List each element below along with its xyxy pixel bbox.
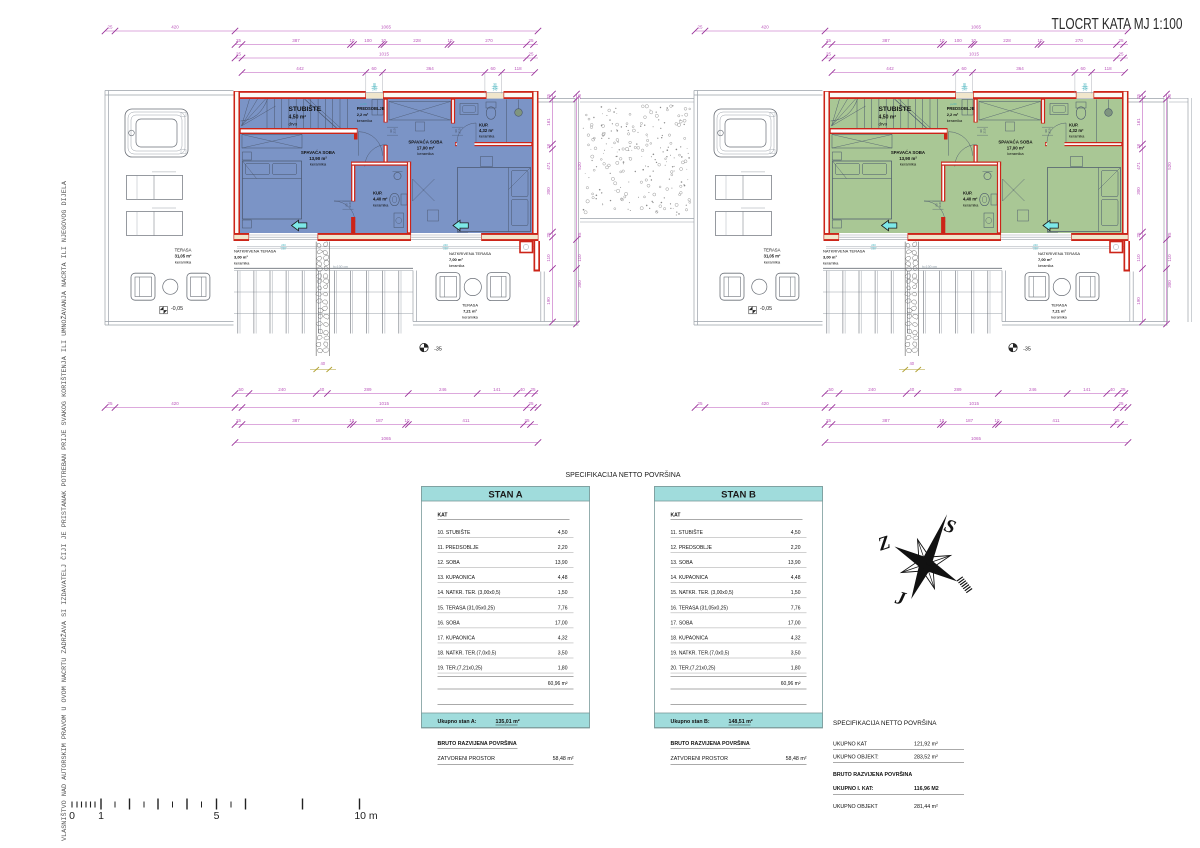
svg-text:4,40 m²: 4,40 m²: [373, 197, 388, 202]
svg-text:UKUPNO OBJEKT: UKUPNO OBJEKT: [833, 804, 879, 810]
svg-text:90: 90: [373, 82, 376, 86]
svg-text:60: 60: [371, 66, 377, 71]
svg-text:drvo: drvo: [289, 121, 298, 126]
svg-text:16. SOBA: 16. SOBA: [438, 620, 461, 626]
svg-text:TLOCRT KATA MJ 1:100: TLOCRT KATA MJ 1:100: [1052, 16, 1183, 33]
svg-text:25: 25: [107, 401, 113, 406]
svg-text:190: 190: [546, 297, 551, 305]
svg-text:STAN B: STAN B: [721, 490, 756, 501]
svg-text:BRUTO RAZVIJENA POVRŠINA: BRUTO RAZVIJENA POVRŠINA: [671, 739, 750, 747]
svg-text:300: 300: [546, 187, 551, 195]
svg-text:25: 25: [1118, 401, 1124, 406]
svg-text:25: 25: [528, 52, 534, 57]
svg-text:ZATVORENI PROSTOR: ZATVORENI PROSTOR: [438, 756, 496, 762]
svg-text:60: 60: [1080, 66, 1086, 71]
svg-text:230: 230: [443, 246, 448, 250]
svg-text:KUP.: KUP.: [963, 191, 972, 196]
svg-text:442: 442: [296, 66, 304, 71]
svg-text:BRUTO RAZVIJENA POVRŠINA: BRUTO RAZVIJENA POVRŠINA: [438, 739, 517, 747]
svg-text:50: 50: [828, 387, 834, 392]
svg-text:STUBIŠTE: STUBIŠTE: [879, 104, 912, 113]
svg-text:3,50: 3,50: [558, 650, 568, 656]
svg-text:17. KUPAONICA: 17. KUPAONICA: [438, 635, 476, 641]
svg-text:60,96 m²: 60,96 m²: [781, 681, 801, 687]
svg-text:h=100 cm: h=100 cm: [333, 265, 348, 269]
svg-text:110: 110: [1167, 254, 1172, 262]
svg-text:50: 50: [238, 387, 244, 392]
svg-text:116,96 M2: 116,96 M2: [914, 786, 939, 792]
svg-text:14. NATKR. TER. (3,00x0,5): 14. NATKR. TER. (3,00x0,5): [438, 590, 501, 596]
svg-text:210: 210: [348, 202, 352, 207]
svg-text:25: 25: [1167, 232, 1172, 238]
svg-text:keramika: keramika: [234, 262, 250, 266]
svg-text:Ukupno stan B:: Ukupno stan B:: [671, 719, 710, 725]
svg-text:5: 5: [214, 810, 220, 822]
svg-text:keramika: keramika: [310, 162, 327, 167]
svg-text:4,50 m²: 4,50 m²: [879, 115, 897, 121]
svg-text:20. TER.(7,21x0,25): 20. TER.(7,21x0,25): [671, 665, 716, 671]
svg-text:keramika: keramika: [479, 135, 495, 139]
svg-text:25: 25: [528, 38, 534, 43]
svg-text:161: 161: [1136, 118, 1141, 126]
svg-text:KAT: KAT: [671, 513, 681, 519]
svg-text:2,20: 2,20: [791, 545, 801, 551]
svg-text:246: 246: [1029, 387, 1037, 392]
svg-text:31,05 m²: 31,05 m²: [764, 254, 781, 259]
svg-text:keramika: keramika: [417, 151, 434, 156]
svg-text:14. KUPAONICA: 14. KUPAONICA: [671, 575, 709, 581]
svg-text:1015: 1015: [379, 401, 390, 406]
svg-text:187: 187: [376, 418, 384, 423]
svg-text:411: 411: [462, 418, 470, 423]
svg-text:228: 228: [413, 38, 421, 43]
svg-text:25: 25: [546, 94, 551, 100]
svg-text:25: 25: [1136, 232, 1141, 238]
svg-text:25: 25: [107, 25, 113, 30]
svg-text:60,96 m²: 60,96 m²: [548, 681, 568, 687]
svg-text:90: 90: [963, 82, 966, 86]
svg-text:210: 210: [982, 128, 986, 133]
svg-text:230: 230: [1033, 246, 1038, 250]
svg-text:3,00 m²: 3,00 m²: [823, 255, 837, 260]
svg-text:UKUPNO OBJEKT:: UKUPNO OBJEKT:: [833, 755, 879, 761]
svg-text:1,80: 1,80: [558, 665, 568, 671]
svg-text:-35: -35: [434, 347, 442, 353]
svg-text:420: 420: [761, 401, 769, 406]
svg-text:drvo: drvo: [879, 121, 888, 126]
svg-text:110: 110: [546, 254, 551, 262]
svg-text:25: 25: [528, 401, 534, 406]
svg-text:10: 10: [971, 38, 977, 43]
svg-text:KUP.: KUP.: [479, 123, 488, 128]
svg-text:18. KUPAONICA: 18. KUPAONICA: [671, 635, 709, 641]
svg-text:210: 210: [1047, 128, 1051, 133]
svg-text:STAN A: STAN A: [488, 490, 522, 501]
svg-text:7,76: 7,76: [558, 605, 568, 611]
svg-text:230: 230: [281, 246, 286, 250]
svg-text:keramika: keramika: [449, 264, 465, 268]
svg-text:281,44 m²: 281,44 m²: [914, 804, 938, 810]
svg-text:19. NATKR. TER.(7,0x0,5): 19. NATKR. TER.(7,0x0,5): [671, 650, 730, 656]
svg-text:NATKRIVENA TERASA: NATKRIVENA TERASA: [1038, 251, 1080, 256]
svg-text:15. TERASA (31,05x0,25): 15. TERASA (31,05x0,25): [438, 605, 496, 611]
svg-text:10: 10: [381, 38, 387, 43]
svg-text:PREDSOBLJE: PREDSOBLJE: [947, 106, 975, 111]
svg-text:0: 0: [69, 810, 75, 822]
svg-text:17,00: 17,00: [788, 620, 801, 626]
svg-text:17,00: 17,00: [555, 620, 568, 626]
svg-text:NATKRIVENA TERASA: NATKRIVENA TERASA: [823, 249, 865, 254]
svg-text:1065: 1065: [971, 436, 982, 441]
svg-text:-0,05: -0,05: [760, 306, 772, 312]
svg-text:17,00 m²: 17,00 m²: [1007, 146, 1025, 151]
svg-text:2,2 m²: 2,2 m²: [947, 112, 959, 117]
svg-text:25: 25: [524, 418, 530, 423]
svg-text:10 m: 10 m: [354, 810, 378, 822]
svg-text:16. TERASA (31,05x0,25): 16. TERASA (31,05x0,25): [671, 605, 729, 611]
svg-text:1,50: 1,50: [558, 590, 568, 596]
svg-text:25: 25: [577, 94, 582, 100]
svg-text:keramika: keramika: [373, 204, 389, 208]
svg-text:210: 210: [938, 202, 942, 207]
svg-text:4,32: 4,32: [791, 635, 801, 641]
svg-text:118: 118: [1104, 66, 1112, 71]
svg-text:UKUPNO I. KAT:: UKUPNO I. KAT:: [833, 786, 874, 792]
svg-text:300: 300: [1136, 187, 1141, 195]
svg-text:18: 18: [1136, 144, 1141, 150]
svg-text:240: 240: [278, 387, 286, 392]
svg-text:10: 10: [939, 38, 945, 43]
svg-text:289: 289: [364, 387, 372, 392]
svg-text:1065: 1065: [381, 436, 392, 441]
svg-text:25: 25: [236, 418, 242, 423]
svg-text:keramika: keramika: [357, 119, 373, 123]
svg-text:VLASNIŠTVO NAD AUTORSKIM PRAVO: VLASNIŠTVO NAD AUTORSKIM PRAVOM U OVOM N…: [61, 181, 68, 841]
svg-text:420: 420: [171, 25, 179, 30]
svg-text:4,48: 4,48: [558, 575, 568, 581]
svg-text:240: 240: [962, 86, 967, 90]
svg-text:364: 364: [1016, 66, 1024, 71]
svg-text:7,00 m²: 7,00 m²: [449, 257, 463, 262]
svg-text:118: 118: [514, 66, 522, 71]
svg-text:2,2 m²: 2,2 m²: [357, 112, 369, 117]
svg-text:520: 520: [577, 162, 582, 170]
svg-text:1015: 1015: [969, 401, 980, 406]
svg-text:135,01 m²: 135,01 m²: [496, 719, 520, 725]
svg-text:p+50: p+50: [360, 102, 367, 106]
svg-text:240: 240: [372, 86, 377, 90]
svg-text:10: 10: [447, 38, 453, 43]
svg-text:keramika: keramika: [1051, 316, 1067, 320]
svg-text:19. TER.(7,21x0,25): 19. TER.(7,21x0,25): [438, 665, 483, 671]
svg-text:25: 25: [236, 38, 242, 43]
svg-text:25: 25: [1136, 94, 1141, 100]
svg-text:25: 25: [826, 418, 832, 423]
svg-text:1015: 1015: [969, 52, 980, 57]
svg-text:40: 40: [520, 387, 526, 392]
svg-text:25: 25: [577, 232, 582, 238]
svg-text:SPAVAĆA SOBA: SPAVAĆA SOBA: [408, 140, 443, 145]
svg-text:210: 210: [457, 128, 461, 133]
svg-text:25: 25: [1118, 38, 1124, 43]
svg-text:11. STUBIŠTE: 11. STUBIŠTE: [671, 529, 704, 536]
svg-text:1065: 1065: [971, 25, 982, 30]
svg-text:13. SOBA: 13. SOBA: [671, 560, 694, 566]
svg-text:keramika: keramika: [823, 262, 839, 266]
svg-text:90: 90: [494, 82, 497, 86]
svg-text:25: 25: [697, 25, 703, 30]
svg-text:NATKRIVENA TERASA: NATKRIVENA TERASA: [234, 249, 276, 254]
svg-text:1: 1: [98, 810, 104, 822]
svg-text:387: 387: [882, 38, 890, 43]
svg-text:110: 110: [1136, 254, 1141, 262]
svg-text:KUP.: KUP.: [1069, 123, 1078, 128]
svg-text:4,48: 4,48: [791, 575, 801, 581]
svg-text:7,21 m²: 7,21 m²: [1052, 309, 1066, 314]
svg-text:60: 60: [961, 66, 967, 71]
svg-text:SPECIFIKACIJA NETTO POVRŠINA: SPECIFIKACIJA NETTO POVRŠINA: [565, 470, 680, 479]
svg-text:7,00 m²: 7,00 m²: [1038, 257, 1052, 262]
svg-text:keramika: keramika: [175, 260, 192, 265]
svg-text:TERASA: TERASA: [175, 248, 192, 253]
svg-text:TERASA: TERASA: [764, 248, 781, 253]
svg-text:471: 471: [546, 162, 551, 170]
svg-text:40: 40: [1110, 387, 1116, 392]
svg-text:4,32 m²: 4,32 m²: [1069, 128, 1084, 133]
svg-text:18. NATKR. TER.(7,0x0,5): 18. NATKR. TER.(7,0x0,5): [438, 650, 497, 656]
svg-text:25: 25: [1118, 52, 1124, 57]
svg-text:25: 25: [236, 52, 242, 57]
svg-text:12. PREDSOBLJE: 12. PREDSOBLJE: [671, 545, 713, 551]
svg-text:58,48 m²: 58,48 m²: [553, 756, 574, 762]
svg-text:228: 228: [1003, 38, 1011, 43]
svg-text:7,76: 7,76: [791, 605, 801, 611]
svg-text:420: 420: [171, 401, 179, 406]
svg-text:10: 10: [939, 418, 945, 423]
svg-text:13,90: 13,90: [555, 560, 568, 566]
svg-text:keramika: keramika: [900, 162, 917, 167]
svg-text:4,32 m²: 4,32 m²: [479, 128, 494, 133]
svg-text:13,90 m²: 13,90 m²: [309, 156, 327, 161]
svg-text:190: 190: [1136, 297, 1141, 305]
svg-text:210: 210: [392, 128, 396, 133]
svg-text:25: 25: [1114, 418, 1120, 423]
svg-text:187: 187: [966, 418, 974, 423]
svg-text:SPAVAĆA SOBA: SPAVAĆA SOBA: [301, 150, 336, 155]
svg-text:1,80: 1,80: [791, 665, 801, 671]
svg-text:1065: 1065: [381, 25, 392, 30]
svg-text:520: 520: [1167, 162, 1172, 170]
svg-text:keramika: keramika: [462, 316, 478, 320]
svg-text:1015: 1015: [379, 52, 390, 57]
svg-text:11. PREDSOBLJE: 11. PREDSOBLJE: [438, 545, 480, 551]
svg-text:keramika: keramika: [1007, 151, 1024, 156]
svg-text:4,50 m²: 4,50 m²: [289, 115, 307, 121]
svg-text:387: 387: [292, 38, 300, 43]
svg-text:4,32: 4,32: [558, 635, 568, 641]
svg-text:BRUTO RAZVIJENA POVRŠINA: BRUTO RAZVIJENA POVRŠINA: [833, 770, 912, 778]
svg-text:300: 300: [577, 280, 582, 288]
svg-text:270: 270: [1075, 38, 1083, 43]
svg-text:10: 10: [1037, 38, 1043, 43]
svg-text:SPECIFIKACIJA NETTO POVRŠINA: SPECIFIKACIJA NETTO POVRŠINA: [833, 718, 937, 727]
svg-text:KUP.: KUP.: [373, 191, 382, 196]
svg-text:411: 411: [1052, 418, 1060, 423]
svg-text:1,50: 1,50: [791, 590, 801, 596]
svg-text:25: 25: [530, 387, 536, 392]
svg-text:387: 387: [882, 418, 890, 423]
svg-text:2,20: 2,20: [558, 545, 568, 551]
svg-text:31,05 m²: 31,05 m²: [175, 254, 192, 259]
svg-text:10: 10: [349, 38, 355, 43]
svg-text:141: 141: [1083, 387, 1091, 392]
svg-text:300: 300: [1167, 280, 1172, 288]
svg-text:17. SOBA: 17. SOBA: [671, 620, 694, 626]
svg-text:110: 110: [577, 254, 582, 262]
svg-text:12. SOBA: 12. SOBA: [438, 560, 461, 566]
svg-text:40: 40: [909, 387, 915, 392]
svg-text:270: 270: [485, 38, 493, 43]
svg-text:40: 40: [319, 387, 325, 392]
svg-text:289: 289: [954, 387, 962, 392]
svg-text:keramika: keramika: [764, 260, 781, 265]
svg-text:90: 90: [1084, 82, 1087, 86]
svg-text:ZATVORENI PROSTOR: ZATVORENI PROSTOR: [671, 756, 729, 762]
svg-text:TERASA: TERASA: [1051, 303, 1067, 308]
svg-text:283,52 m²: 283,52 m²: [914, 755, 938, 761]
svg-text:240: 240: [868, 387, 876, 392]
svg-text:PREDSOBLJE: PREDSOBLJE: [357, 106, 385, 111]
svg-text:230: 230: [871, 246, 876, 250]
svg-text:17,00 m²: 17,00 m²: [417, 146, 435, 151]
svg-text:25: 25: [1120, 387, 1126, 392]
svg-text:420: 420: [761, 25, 769, 30]
svg-text:keramika: keramika: [1069, 135, 1085, 139]
svg-text:STUBIŠTE: STUBIŠTE: [289, 104, 322, 113]
svg-text:NATKRIVENA TERASA: NATKRIVENA TERASA: [449, 251, 491, 256]
svg-text:p+50: p+50: [950, 102, 957, 106]
svg-text:-35: -35: [1023, 347, 1031, 353]
svg-text:4,50: 4,50: [558, 530, 568, 536]
svg-text:SPAVAĆA SOBA: SPAVAĆA SOBA: [891, 150, 926, 155]
svg-text:240: 240: [493, 86, 498, 90]
svg-text:keramika: keramika: [1038, 264, 1054, 268]
svg-text:10. STUBIŠTE: 10. STUBIŠTE: [438, 529, 471, 536]
svg-text:10: 10: [349, 418, 355, 423]
svg-text:SPAVAĆA SOBA: SPAVAĆA SOBA: [998, 140, 1033, 145]
svg-text:387: 387: [292, 418, 300, 423]
svg-text:h=100 cm: h=100 cm: [922, 265, 937, 269]
svg-text:141: 141: [493, 387, 501, 392]
svg-text:13. KUPAONICA: 13. KUPAONICA: [438, 575, 476, 581]
svg-text:161: 161: [546, 118, 551, 126]
svg-text:58,48 m²: 58,48 m²: [786, 756, 807, 762]
svg-text:10: 10: [994, 418, 1000, 423]
svg-text:KAT: KAT: [438, 513, 448, 519]
svg-text:100: 100: [954, 38, 962, 43]
svg-text:25: 25: [1167, 94, 1172, 100]
svg-text:15. NATKR. TER. (3,00x0,5): 15. NATKR. TER. (3,00x0,5): [671, 590, 734, 596]
svg-text:4,50: 4,50: [791, 530, 801, 536]
svg-text:4,40 m²: 4,40 m²: [963, 197, 978, 202]
svg-text:7,21 m²: 7,21 m²: [463, 309, 477, 314]
svg-text:25: 25: [546, 232, 551, 238]
svg-text:240: 240: [1083, 86, 1088, 90]
svg-text:-0,05: -0,05: [171, 306, 183, 312]
svg-text:148,51 m²: 148,51 m²: [729, 719, 753, 725]
svg-text:13,90 m²: 13,90 m²: [899, 156, 917, 161]
svg-text:442: 442: [886, 66, 894, 71]
svg-text:471: 471: [1136, 162, 1141, 170]
svg-text:3,50: 3,50: [791, 650, 801, 656]
svg-text:3,00 m²: 3,00 m²: [234, 255, 248, 260]
svg-text:60: 60: [490, 66, 496, 71]
svg-text:keramika: keramika: [963, 204, 979, 208]
svg-text:keramika: keramika: [947, 119, 963, 123]
svg-text:100: 100: [364, 38, 372, 43]
svg-text:40: 40: [909, 361, 914, 366]
svg-text:25: 25: [697, 401, 703, 406]
svg-text:364: 364: [426, 66, 434, 71]
svg-text:Ukupno stan A:: Ukupno stan A:: [438, 719, 477, 725]
svg-text:UKUPNO KAT: UKUPNO KAT: [833, 742, 868, 748]
svg-text:10: 10: [404, 418, 410, 423]
svg-text:121,92 m²: 121,92 m²: [914, 742, 938, 748]
svg-text:TERASA: TERASA: [462, 303, 478, 308]
svg-text:40: 40: [320, 361, 325, 366]
svg-text:13,90: 13,90: [788, 560, 801, 566]
svg-text:25: 25: [826, 38, 832, 43]
svg-text:246: 246: [439, 387, 447, 392]
svg-text:18: 18: [546, 144, 551, 150]
svg-text:25: 25: [826, 52, 832, 57]
